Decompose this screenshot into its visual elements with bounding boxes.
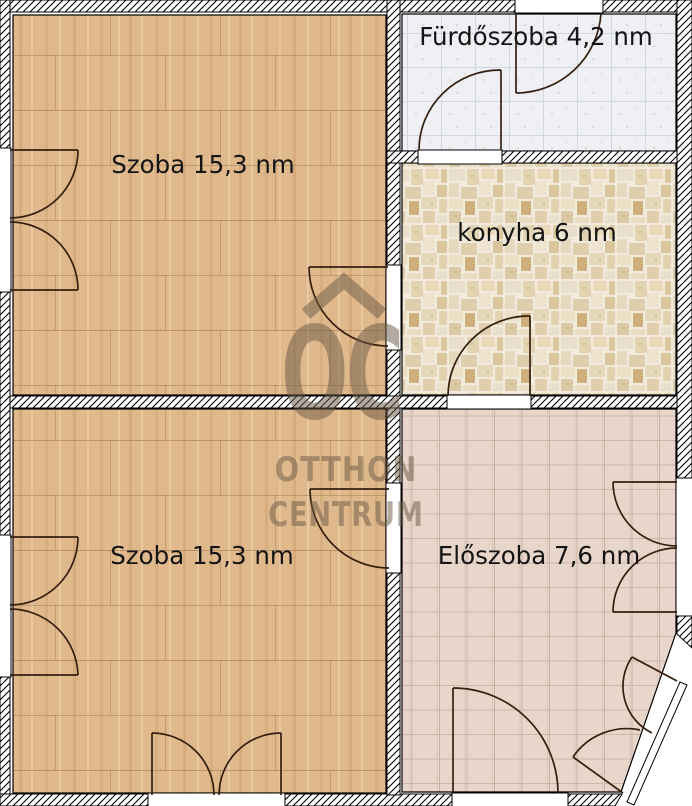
opening-door-szoba-bottom-south — [148, 793, 285, 806]
room-label-furdoszoba: Fürdőszoba 4,2 nm — [419, 22, 653, 51]
room-label-eloszoba: Előszoba 7,6 nm — [438, 541, 640, 570]
floor-plan-svg: Szoba 15,3 nm Fürdőszoba 4,2 nm konyha 6… — [0, 0, 692, 806]
opening-door-furdoszoba-konyha — [418, 150, 502, 164]
room-label-szoba-bottom: Szoba 15,3 nm — [110, 541, 294, 570]
room-label-szoba-top: Szoba 15,3 nm — [111, 150, 295, 179]
room-floor-eloszoba — [402, 409, 676, 792]
opening-door-furdoszoba-north — [515, 0, 603, 13]
watermark-logo-text: OC — [281, 300, 402, 449]
watermark: OC OTTHON CENTRUM — [268, 281, 423, 535]
watermark-line1: OTTHON — [275, 451, 418, 490]
room-label-konyha: konyha 6 nm — [457, 218, 616, 247]
wall-left — [0, 0, 10, 806]
opening-door-eloszoba-south — [452, 793, 568, 806]
opening-window-szoba-bottom — [0, 535, 11, 677]
watermark-line2: CENTRUM — [268, 495, 423, 535]
opening-window-eloszoba-east — [676, 478, 692, 616]
room-floor-konyha — [402, 163, 676, 395]
opening-window-szoba-top — [0, 148, 11, 292]
floor-plan: Szoba 15,3 nm Fürdőszoba 4,2 nm konyha 6… — [0, 0, 692, 806]
opening-door-konyha-eloszoba — [447, 395, 531, 409]
